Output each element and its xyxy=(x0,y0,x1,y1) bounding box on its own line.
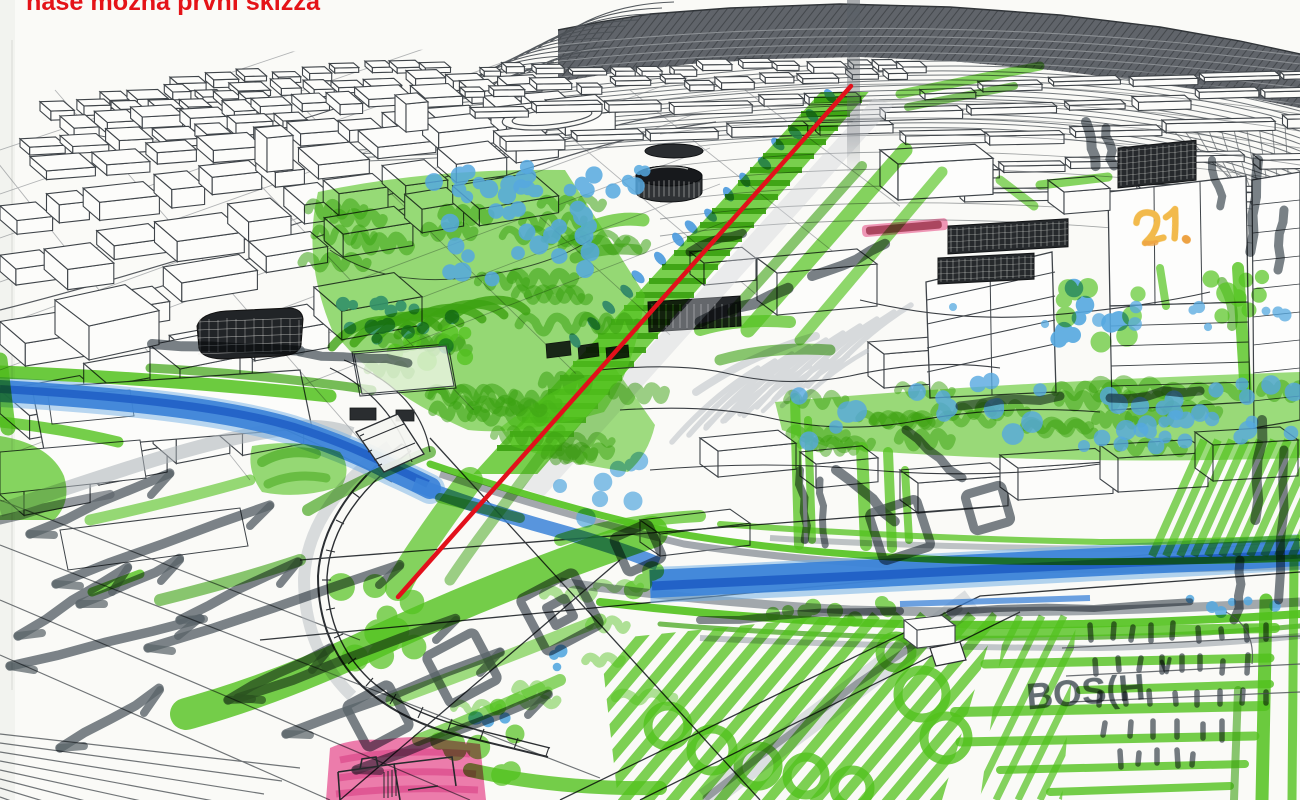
svg-text:naše možná první skizza: naše možná první skizza xyxy=(26,0,321,16)
